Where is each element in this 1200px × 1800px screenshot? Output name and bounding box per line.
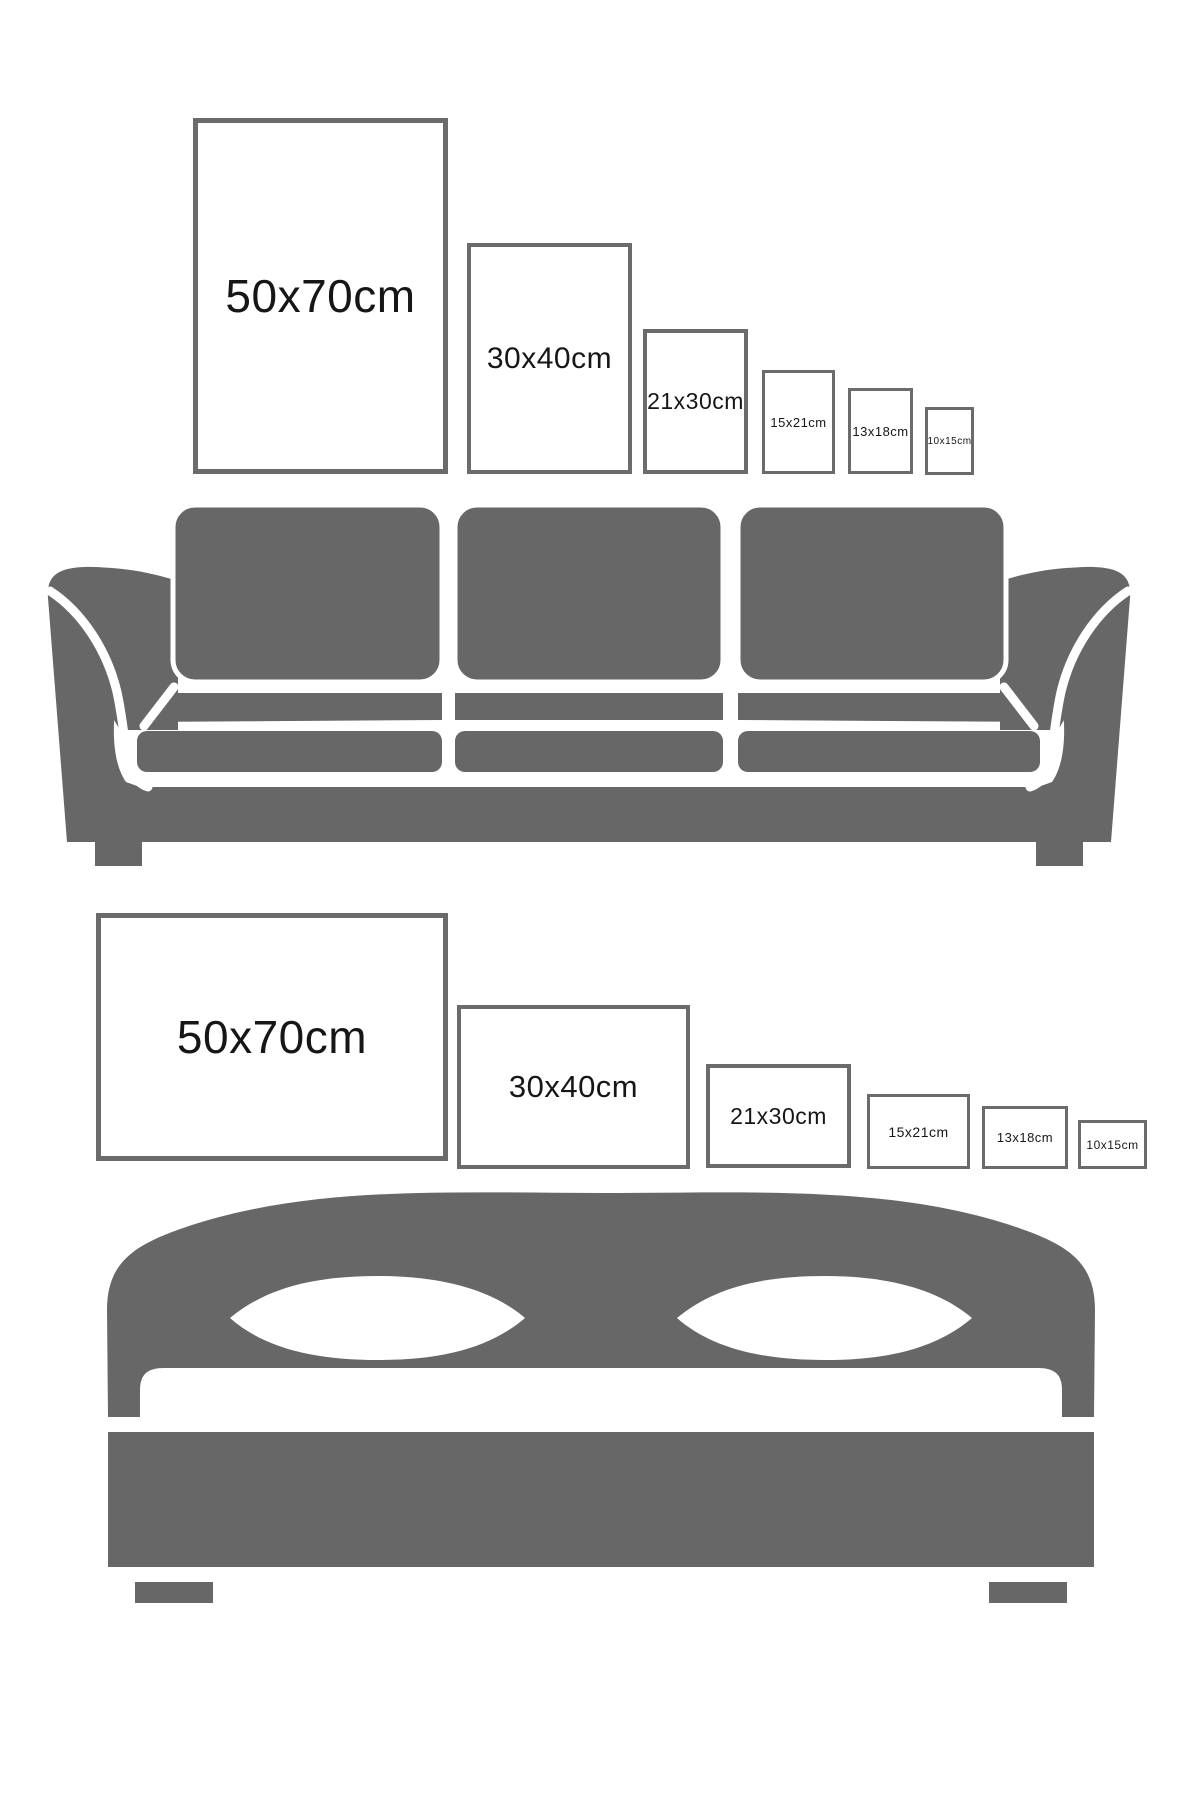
bed-foot-right [989, 1582, 1067, 1603]
bed-foot-left [135, 1582, 213, 1603]
sofa-foot-right [1036, 842, 1083, 866]
size-label: 21x30cm [647, 388, 744, 415]
size-label: 10x15cm [927, 436, 971, 447]
sofa-back-cushion [173, 505, 442, 682]
size-frame-portrait-10x15: 10x15cm [925, 407, 974, 475]
sofa-seat-cushion [455, 731, 723, 772]
size-label: 15x21cm [770, 415, 826, 430]
size-frame-portrait-15x21: 15x21cm [762, 370, 835, 474]
size-label: 15x21cm [888, 1124, 948, 1140]
size-label: 21x30cm [730, 1103, 827, 1130]
size-label: 30x40cm [509, 1069, 638, 1105]
size-label: 30x40cm [487, 342, 612, 376]
size-label: 10x15cm [1086, 1138, 1138, 1152]
size-frame-landscape-50x70: 50x70cm [96, 913, 448, 1161]
size-frame-landscape-30x40: 30x40cm [457, 1005, 690, 1169]
size-label: 50x70cm [225, 269, 415, 323]
sofa-seat-cushion [137, 731, 442, 772]
sofa-seat-cushion [738, 731, 1040, 772]
bed-icon [0, 1170, 1200, 1630]
sofa-back-cushion [738, 505, 1006, 682]
size-frame-landscape-13x18: 13x18cm [982, 1106, 1068, 1169]
sofa-foot-left [95, 842, 142, 866]
size-frame-landscape-15x21: 15x21cm [867, 1094, 970, 1169]
sofa-deck-right [738, 693, 1046, 722]
size-frame-landscape-10x15: 10x15cm [1078, 1120, 1147, 1169]
sofa-back-cushion [455, 505, 723, 682]
size-frame-portrait-13x18: 13x18cm [848, 388, 913, 474]
sofa-icon [0, 480, 1200, 880]
poster-size-guide: 50x70cm 30x40cm 21x30cm 15x21cm 13x18cm … [0, 0, 1200, 1800]
size-frame-portrait-30x40: 30x40cm [467, 243, 632, 474]
size-frame-portrait-21x30: 21x30cm [643, 329, 748, 474]
size-frame-landscape-21x30: 21x30cm [706, 1064, 851, 1168]
size-label: 13x18cm [997, 1130, 1053, 1145]
size-label: 13x18cm [852, 424, 908, 439]
sofa-deck-middle [455, 693, 723, 720]
size-frame-portrait-50x70: 50x70cm [193, 118, 448, 474]
bed-mattress [108, 1432, 1094, 1567]
sofa-deck-left [132, 693, 442, 722]
size-label: 50x70cm [177, 1010, 367, 1064]
